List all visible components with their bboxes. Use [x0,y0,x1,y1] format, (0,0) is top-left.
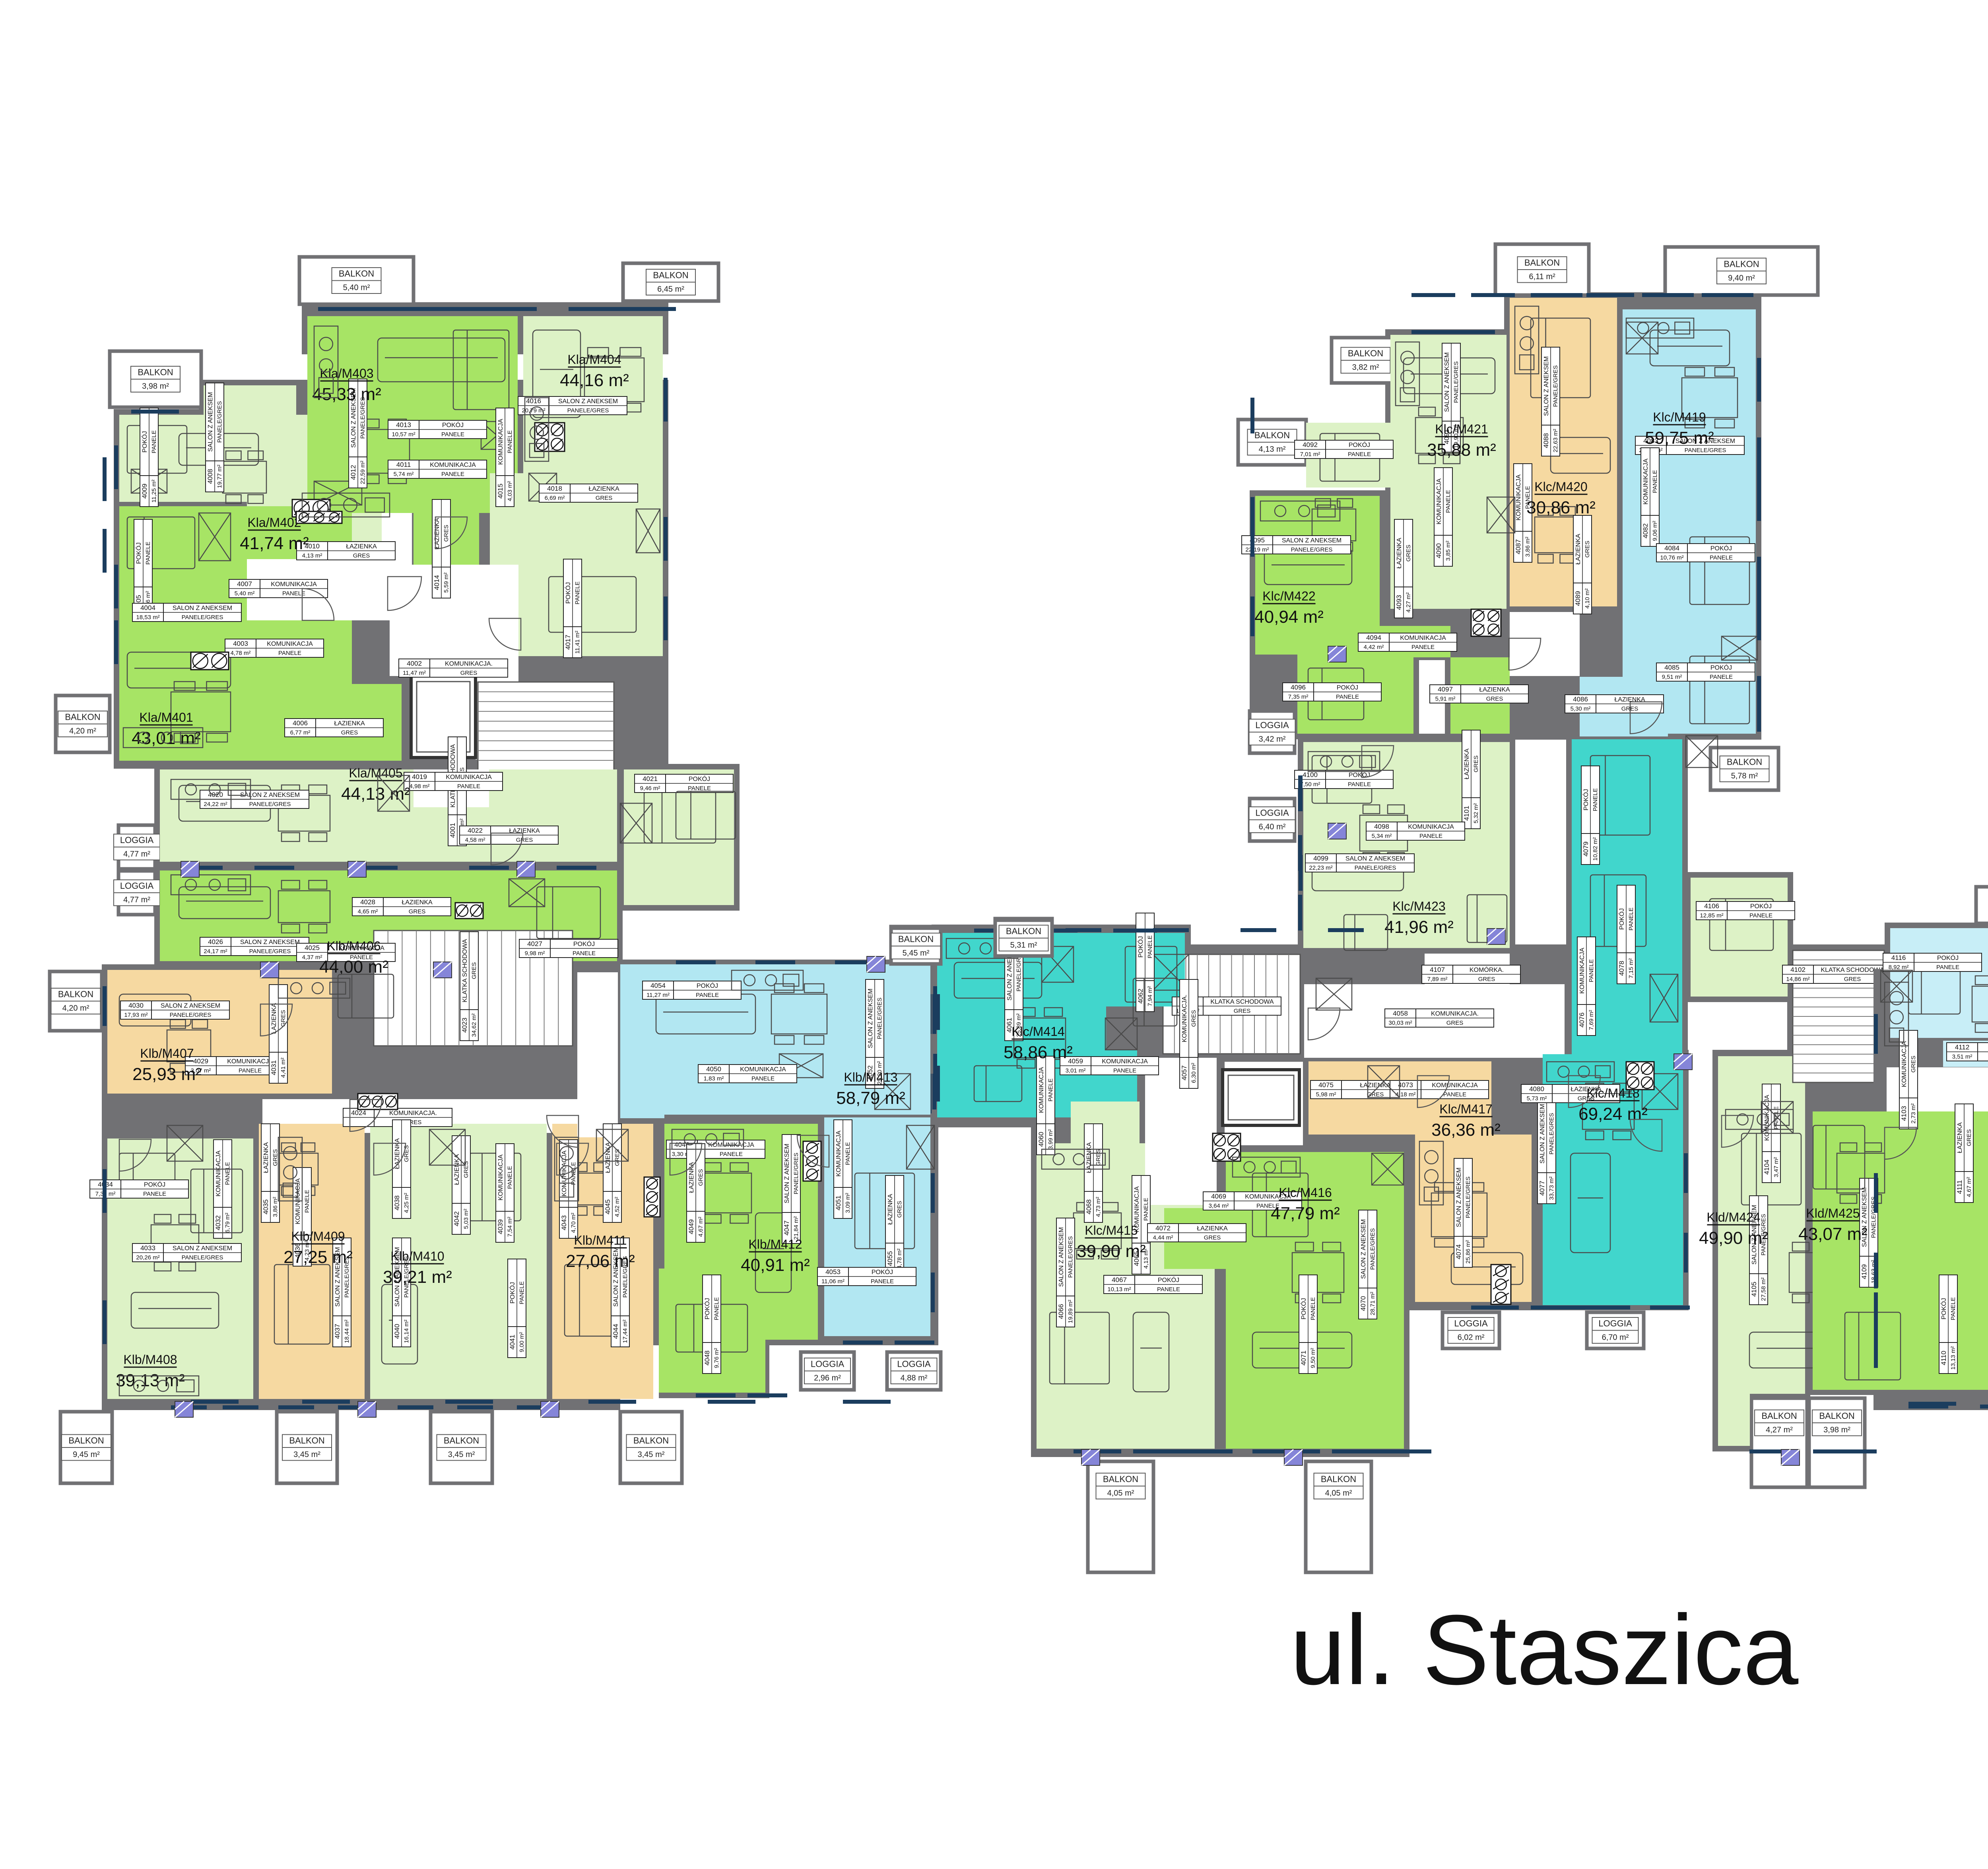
svg-text:22,23 m²: 22,23 m² [1309,865,1332,871]
svg-text:3,85 m²: 3,85 m² [1445,541,1452,561]
svg-text:Klb/M411: Klb/M411 [574,1233,627,1247]
svg-text:POKÓJ: POKÓJ [1349,441,1370,449]
svg-text:ŁAZIENKA: ŁAZIENKA [263,1142,270,1173]
svg-text:4037: 4037 [334,1324,341,1339]
svg-text:Kla/M405: Kla/M405 [349,766,402,780]
svg-text:21,84 m²: 21,84 m² [793,1216,800,1240]
svg-text:4,41 m²: 4,41 m² [280,1058,287,1078]
svg-text:4,65 m²: 4,65 m² [358,908,378,915]
svg-text:44,00 m²: 44,00 m² [319,957,388,977]
svg-text:Kla/M403: Kla/M403 [320,366,373,381]
svg-text:KOMUNIKACJA.: KOMUNIKACJA. [1431,1010,1479,1017]
svg-text:PANELE: PANELE [1592,788,1599,811]
svg-text:4028: 4028 [360,898,375,906]
svg-text:POKÓJ: POKÓJ [872,1268,893,1276]
svg-text:ŁAZIENKA: ŁAZIENKA [271,1003,278,1034]
svg-text:ŁAZIENKA: ŁAZIENKA [588,486,619,492]
svg-text:KOMUNIKACJA: KOMUNIKACJA [1038,1067,1045,1113]
svg-text:PANELE: PANELE [845,1142,851,1165]
svg-text:KOMUNIKACJA: KOMUNIKACJA [1102,1058,1148,1065]
svg-text:KOMUNIKACJA: KOMUNIKACJA [1436,478,1442,525]
svg-text:ŁAZIENKA: ŁAZIENKA [1197,1225,1228,1232]
svg-text:44,16 m²: 44,16 m² [560,371,629,390]
svg-text:7,35 m²: 7,35 m² [1288,694,1309,700]
svg-text:GRES: GRES [1478,976,1495,983]
svg-text:17,44 m²: 17,44 m² [622,1319,629,1343]
svg-text:4,13 m²: 4,13 m² [1259,445,1286,454]
svg-text:13,13 m²: 13,13 m² [1950,1346,1957,1370]
svg-text:POKÓJ: POKÓJ [141,431,148,453]
svg-text:POKÓJ: POKÓJ [1337,684,1358,691]
svg-text:3,51 m²: 3,51 m² [1952,1053,1972,1060]
svg-text:40,91 m²: 40,91 m² [741,1255,810,1275]
svg-text:2,96 m²: 2,96 m² [814,1374,841,1383]
svg-text:PANELE: PANELE [871,1278,894,1285]
svg-text:4038: 4038 [393,1195,401,1210]
svg-text:ŁAZIENKA: ŁAZIENKA [1396,538,1403,569]
svg-text:18,53 m²: 18,53 m² [136,614,159,621]
svg-text:5,32 m²: 5,32 m² [1473,803,1479,824]
svg-text:39,13 m²: 39,13 m² [116,1371,185,1390]
svg-text:2,73 m²: 2,73 m² [1910,1104,1917,1124]
svg-text:GRES: GRES [1584,541,1591,558]
svg-text:3,42 m²: 3,42 m² [1259,735,1286,744]
svg-text:SALON Z ANEKSEM: SALON Z ANEKSEM [1456,1168,1462,1227]
svg-text:11,41 m²: 11,41 m² [574,631,581,654]
svg-text:4,78 m²: 4,78 m² [896,1249,903,1269]
svg-text:SALON Z ANEKSEM: SALON Z ANEKSEM [1058,1227,1065,1287]
svg-text:4004: 4004 [140,604,155,612]
svg-text:Klb/M407: Klb/M407 [140,1046,194,1061]
svg-text:27,58 m²: 27,58 m² [1760,1277,1767,1301]
svg-text:3,86 m²: 3,86 m² [1524,537,1531,557]
svg-text:BALKON: BALKON [1524,258,1560,268]
svg-text:POKÓJ: POKÓJ [1582,789,1590,810]
svg-text:4,44 m²: 4,44 m² [1153,1234,1173,1241]
svg-text:BALKON: BALKON [1254,430,1290,440]
svg-text:3,98 m²: 3,98 m² [1823,1426,1850,1434]
svg-text:4086: 4086 [1573,696,1588,703]
svg-text:PANELE/GRES: PANELE/GRES [216,401,223,443]
svg-text:4,88 m²: 4,88 m² [901,1374,928,1383]
svg-text:5,78 m²: 5,78 m² [1731,772,1758,781]
svg-text:LOGGIA: LOGGIA [1255,808,1289,818]
svg-text:PANELE: PANELE [441,431,464,438]
svg-text:4,73 m²: 4,73 m² [1095,1197,1102,1217]
svg-text:KOMUNIKACJA: KOMUNIKACJA [497,1154,504,1201]
svg-text:4,78 m²: 4,78 m² [231,650,251,657]
svg-text:LOGGIA: LOGGIA [1255,720,1289,730]
svg-text:KOMUNIKACJA: KOMUNIKACJA [1515,474,1522,521]
svg-text:PANELE/GRES: PANELE/GRES [1453,361,1460,403]
svg-text:7,15 m²: 7,15 m² [1628,958,1635,979]
svg-text:4021: 4021 [643,775,658,783]
svg-text:4,42 m²: 4,42 m² [1364,644,1384,651]
svg-text:4019: 4019 [412,773,427,781]
svg-text:GRES: GRES [1966,1129,1972,1146]
svg-text:GRES: GRES [1204,1234,1221,1241]
svg-text:5,73 m²: 5,73 m² [1527,1095,1547,1102]
svg-text:4031: 4031 [270,1060,278,1075]
svg-text:4023: 4023 [461,1018,468,1033]
svg-text:GRES: GRES [896,1201,903,1218]
svg-text:GRES: GRES [443,525,450,542]
svg-text:SALON Z ANEKSEM: SALON Z ANEKSEM [1360,1219,1367,1279]
svg-text:4105: 4105 [1750,1282,1758,1297]
svg-text:PANELE: PANELE [1950,1297,1957,1320]
svg-text:GRES: GRES [614,1149,621,1166]
svg-text:PANELE: PANELE [1143,1198,1149,1221]
svg-text:7,89 m²: 7,89 m² [1427,976,1448,983]
svg-text:4009: 4009 [141,484,148,499]
svg-text:BALKON: BALKON [339,269,374,279]
svg-text:PANELE: PANELE [1310,1297,1316,1320]
svg-text:PANELE/GRES: PANELE/GRES [1067,1236,1074,1278]
svg-text:4,77 m²: 4,77 m² [123,896,150,904]
svg-text:41,96 m²: 41,96 m² [1384,917,1454,937]
svg-text:POKÓJ: POKÓJ [697,982,718,989]
svg-text:9,76 m²: 9,76 m² [713,1348,720,1368]
svg-text:4072: 4072 [1155,1224,1171,1232]
svg-text:4051: 4051 [835,1195,842,1210]
svg-text:PANELE: PANELE [224,1162,231,1185]
svg-text:GRES: GRES [1190,1010,1197,1027]
svg-text:24,17 m²: 24,17 m² [204,948,227,955]
svg-text:GRES: GRES [516,837,533,843]
svg-text:4,20 m²: 4,20 m² [69,727,96,736]
svg-text:BALKON: BALKON [68,1436,104,1445]
svg-text:POKÓJ: POKÓJ [573,940,595,948]
svg-text:KOMUNIKACJA: KOMUNIKACJA [430,462,476,468]
svg-text:5,03 m²: 5,03 m² [463,1209,470,1229]
svg-text:ŁAZIENKA: ŁAZIENKA [1957,1122,1963,1153]
svg-text:POKÓJ: POKÓJ [689,775,710,783]
svg-text:4002: 4002 [407,660,422,667]
svg-text:6,02 m²: 6,02 m² [1458,1333,1485,1342]
svg-text:4006: 4006 [293,719,308,727]
svg-text:4112: 4112 [1955,1043,1970,1051]
svg-text:5,91 m²: 5,91 m² [1435,696,1456,702]
svg-text:43,07 m²: 43,07 m² [1798,1224,1868,1244]
svg-text:5,45 m²: 5,45 m² [903,949,930,958]
svg-text:SALON Z ANEKSEM: SALON Z ANEKSEM [1539,1104,1546,1164]
svg-text:4088: 4088 [1542,433,1550,448]
svg-text:GRES: GRES [1486,696,1503,702]
svg-text:PANELE/GRES: PANELE/GRES [182,1254,223,1261]
svg-text:GRES: GRES [1095,1149,1102,1166]
svg-text:25,93 m²: 25,93 m² [132,1065,202,1084]
svg-text:LOGGIA: LOGGIA [120,881,154,891]
svg-text:4,05 m²: 4,05 m² [1107,1489,1134,1498]
svg-text:4077: 4077 [1538,1181,1546,1196]
svg-text:POKÓJ: POKÓJ [1937,954,1959,962]
svg-text:4053: 4053 [825,1268,841,1276]
svg-text:POKÓJ: POKÓJ [1618,908,1625,930]
svg-text:6,77 m²: 6,77 m² [290,729,311,736]
svg-text:ŁAZIENKA: ŁAZIENKA [1479,686,1510,693]
svg-text:34,62 m²: 34,62 m² [471,1013,478,1037]
svg-text:GRES: GRES [280,1010,287,1027]
svg-text:Klc/M417: Klc/M417 [1439,1102,1492,1116]
svg-text:4098: 4098 [1374,823,1389,830]
svg-text:58,86 m²: 58,86 m² [1004,1043,1073,1062]
svg-text:4026: 4026 [208,938,223,946]
svg-text:PANELE/GRES: PANELE/GRES [1685,447,1726,454]
svg-text:4,67 m²: 4,67 m² [697,1217,704,1237]
svg-text:4022: 4022 [468,827,483,834]
svg-text:POKÓJ: POKÓJ [1750,902,1772,910]
svg-text:49,90 m²: 49,90 m² [1699,1228,1768,1248]
svg-text:PANELE: PANELE [304,1190,311,1213]
svg-text:BALKON: BALKON [444,1436,479,1445]
svg-text:47,79 m²: 47,79 m² [1271,1204,1340,1223]
svg-text:7,69 m²: 7,69 m² [1588,1010,1595,1030]
svg-text:4060: 4060 [1037,1132,1045,1147]
svg-text:4050: 4050 [706,1065,721,1073]
svg-text:BALKON: BALKON [1321,1474,1356,1484]
svg-text:4044: 4044 [612,1324,619,1339]
svg-text:4047: 4047 [783,1220,790,1236]
svg-text:PANELE: PANELE [1157,1286,1180,1293]
svg-text:4087: 4087 [1514,539,1522,554]
svg-text:PANELE: PANELE [1936,964,1959,971]
svg-text:36,36 m²: 36,36 m² [1431,1120,1501,1140]
svg-text:KOMUNIKACJA.: KOMUNIKACJA. [1181,995,1188,1042]
svg-text:SALON Z ANEKSEM: SALON Z ANEKSEM [1543,356,1550,416]
svg-text:PANELE: PANELE [151,430,157,453]
svg-text:3,64 m²: 3,64 m² [1209,1203,1229,1209]
svg-text:SALON Z ANEKSEM: SALON Z ANEKSEM [173,1245,232,1252]
svg-text:3,09 m²: 3,09 m² [845,1193,851,1213]
svg-text:11,47 m²: 11,47 m² [403,670,426,676]
svg-text:PANELE: PANELE [1628,907,1635,931]
svg-text:4089: 4089 [1574,591,1582,606]
svg-text:GRES: GRES [1473,756,1479,773]
svg-text:PANELE/GRES: PANELE/GRES [567,407,609,414]
svg-text:GRES: GRES [697,1169,704,1186]
svg-text:4,77 m²: 4,77 m² [123,850,150,859]
svg-text:4017: 4017 [564,635,572,650]
svg-text:Kla/M404: Kla/M404 [567,352,621,367]
svg-text:17,93 m²: 17,93 m² [124,1012,148,1018]
svg-text:4,52 m²: 4,52 m² [614,1197,621,1217]
svg-text:4116: 4116 [1891,954,1906,962]
svg-text:PANELE: PANELE [1652,470,1658,493]
svg-text:KOMUNIKACJA: KOMUNIKACJA [835,1131,842,1177]
svg-text:Klc/M419: Klc/M419 [1653,410,1706,424]
svg-text:PANELE: PANELE [688,785,711,792]
svg-text:4074: 4074 [1455,1244,1462,1259]
svg-text:4025: 4025 [305,944,320,952]
svg-text:BALKON: BALKON [138,367,173,377]
svg-text:BALKON: BALKON [1724,259,1759,269]
svg-text:PANELE: PANELE [239,1067,262,1074]
svg-text:GRES: GRES [1446,1020,1464,1026]
svg-text:Klb/M409: Klb/M409 [291,1229,345,1243]
svg-text:ŁAZIENKA: ŁAZIENKA [887,1194,894,1225]
svg-text:PANELE: PANELE [278,650,301,657]
svg-text:6,40 m²: 6,40 m² [1259,823,1286,832]
svg-text:9,50 m²: 9,50 m² [1310,1348,1316,1368]
svg-text:3,99 m²: 3,99 m² [1047,1129,1054,1150]
svg-text:KOMUNIKACJA: KOMUNIKACJA [1901,1041,1908,1087]
svg-text:4042: 4042 [453,1211,460,1226]
svg-text:4092: 4092 [1303,441,1318,449]
svg-text:Klc/M414: Klc/M414 [1011,1024,1064,1039]
svg-text:POKÓJ: POKÓJ [564,582,572,604]
svg-text:4,70 m²: 4,70 m² [570,1213,577,1233]
svg-text:6,79 m²: 6,79 m² [224,1213,231,1233]
svg-text:6,69 m²: 6,69 m² [545,495,565,501]
svg-text:PANELE: PANELE [507,430,513,453]
svg-text:9,51 m²: 9,51 m² [1662,674,1682,680]
svg-text:4049: 4049 [687,1219,695,1234]
svg-text:GRES: GRES [1405,545,1412,562]
svg-text:4084: 4084 [1664,544,1679,552]
svg-text:Klb/M412: Klb/M412 [748,1237,802,1251]
svg-text:KOMUNIKACJA: KOMUNIKACJA [215,1150,222,1197]
svg-text:10,82 m²: 10,82 m² [1592,837,1599,861]
svg-text:PANELE/GRES: PANELE/GRES [876,998,883,1039]
svg-text:4041: 4041 [509,1335,516,1350]
svg-text:4057: 4057 [1180,1065,1188,1080]
svg-text:SALON Z ANEKSEM: SALON Z ANEKSEM [1444,352,1450,412]
svg-text:7,50 m²: 7,50 m² [1300,781,1320,788]
svg-text:GRES: GRES [1367,1091,1384,1098]
svg-text:PANELE: PANELE [145,542,151,565]
svg-text:Kla/M401: Kla/M401 [139,710,193,725]
svg-text:20,26 m²: 20,26 m² [136,1254,159,1261]
svg-text:Klc/M421: Klc/M421 [1435,422,1488,436]
svg-text:4107: 4107 [1430,966,1445,973]
svg-text:4111: 4111 [1956,1180,1963,1194]
svg-text:POKÓJ: POKÓJ [1137,936,1144,958]
svg-text:3,86 m²: 3,86 m² [272,1197,279,1217]
svg-text:GRES: GRES [409,908,426,915]
svg-text:BALKON: BALKON [1103,1474,1138,1484]
svg-text:KOMUNIKACJA: KOMUNIKACJA [1579,948,1586,994]
svg-text:3,45 m²: 3,45 m² [638,1450,665,1459]
svg-text:ŁAZIENKA: ŁAZIENKA [1360,1082,1391,1089]
svg-text:KOMUNIKACJA: KOMUNIKACJA [227,1058,273,1065]
svg-text:4066: 4066 [1057,1304,1065,1319]
svg-text:4043: 4043 [560,1215,568,1230]
svg-text:POKÓJ: POKÓJ [1300,1298,1307,1319]
svg-text:4110: 4110 [1940,1351,1947,1366]
svg-text:6,30 m²: 6,30 m² [1190,1063,1197,1083]
svg-text:ŁAZIENKA: ŁAZIENKA [454,1154,460,1185]
svg-text:1,83 m²: 1,83 m² [704,1075,724,1082]
svg-text:4078: 4078 [1618,961,1625,976]
svg-text:SALON Z ANEKSEM: SALON Z ANEKSEM [240,939,300,946]
svg-text:SALON Z ANEKSEM: SALON Z ANEKSEM [240,792,300,799]
svg-text:BALKON: BALKON [58,989,93,999]
svg-text:8,92 m²: 8,92 m² [1889,964,1909,971]
svg-text:4106: 4106 [1704,902,1719,910]
svg-text:BALKON: BALKON [653,270,688,280]
svg-text:PANELE: PANELE [574,581,581,604]
svg-text:Kld/M425: Kld/M425 [1806,1206,1860,1220]
svg-text:4103: 4103 [1900,1106,1908,1121]
svg-text:3,45 m²: 3,45 m² [293,1450,320,1459]
svg-text:PANELE: PANELE [713,1297,720,1320]
svg-text:PANELE/GRES: PANELE/GRES [170,1012,212,1018]
svg-text:4082: 4082 [1642,523,1649,538]
svg-text:4014: 4014 [433,575,441,590]
svg-text:KOMUNIKACJA: KOMUNIKACJA [1432,1082,1478,1089]
svg-text:PANELE: PANELE [1348,781,1371,788]
svg-text:ŁAZIENKA: ŁAZIENKA [1575,534,1582,565]
svg-text:4032: 4032 [214,1215,222,1230]
svg-text:KOMUNIKACJA: KOMUNIKACJA [271,581,317,588]
svg-text:ŁAZIENKA: ŁAZIENKA [346,543,377,550]
svg-text:5,40 m²: 5,40 m² [235,590,255,597]
svg-text:9,46 m²: 9,46 m² [640,785,660,792]
svg-text:9,06 m²: 9,06 m² [1652,521,1658,541]
svg-text:4104: 4104 [1763,1160,1771,1175]
svg-text:4012: 4012 [349,465,357,480]
svg-text:14,86 m²: 14,86 m² [1786,976,1809,983]
svg-text:4045: 4045 [604,1199,612,1214]
svg-text:ŁAZIENKA: ŁAZIENKA [402,899,433,906]
svg-text:4067: 4067 [1112,1276,1127,1284]
svg-text:6,11 m²: 6,11 m² [1529,272,1555,281]
svg-text:PANELE: PANELE [143,1191,166,1197]
svg-text:4069: 4069 [1211,1193,1226,1200]
svg-text:SALON Z ANEKSEM: SALON Z ANEKSEM [867,989,874,1048]
svg-text:PANELE: PANELE [1147,935,1153,958]
svg-text:4068: 4068 [1085,1199,1093,1214]
svg-text:PANELE: PANELE [1749,912,1773,919]
svg-text:GRES: GRES [596,495,613,501]
svg-text:69,24 m²: 69,24 m² [1578,1104,1648,1124]
svg-text:BALKON: BALKON [65,712,100,722]
svg-text:4029: 4029 [193,1057,208,1065]
svg-text:11,06 m²: 11,06 m² [821,1278,845,1285]
svg-text:4039: 4039 [497,1219,504,1234]
svg-text:4055: 4055 [886,1251,894,1266]
svg-text:5,31 m²: 5,31 m² [1010,941,1037,950]
svg-text:POKÓJ: POKÓJ [135,542,142,564]
svg-text:5,59 m²: 5,59 m² [443,573,450,593]
svg-text:BALKON: BALKON [1819,1411,1854,1421]
svg-text:4080: 4080 [1529,1085,1544,1093]
svg-text:9,45 m²: 9,45 m² [73,1450,100,1459]
svg-text:KOMÓRKA.: KOMÓRKA. [1470,966,1504,973]
svg-text:LOGGIA: LOGGIA [811,1359,845,1369]
svg-text:4101: 4101 [1463,806,1470,821]
svg-text:PANELE: PANELE [1443,1091,1466,1098]
svg-text:6,70 m²: 6,70 m² [1602,1333,1629,1342]
svg-text:SALON Z ANEKSEM: SALON Z ANEKSEM [784,1144,790,1203]
svg-text:ŁAZIENKA: ŁAZIENKA [1464,748,1470,779]
svg-text:4035: 4035 [262,1199,270,1214]
svg-text:ŁAZIENKA: ŁAZIENKA [334,720,365,727]
svg-text:PANELE: PANELE [1710,554,1733,561]
svg-text:4,67 m²: 4,67 m² [1966,1177,1972,1197]
svg-text:4,10 m²: 4,10 m² [1584,589,1591,609]
svg-text:KOMUNIKACJA: KOMUNIKACJA [1642,459,1649,505]
svg-text:5,74 m²: 5,74 m² [394,471,414,478]
svg-text:POKÓJ: POKÓJ [703,1298,711,1319]
svg-text:3,47 m²: 3,47 m² [1773,1157,1780,1177]
svg-text:PANELE: PANELE [573,950,596,957]
svg-text:4001: 4001 [449,823,456,838]
svg-text:PANELE: PANELE [1336,694,1359,700]
svg-text:4024: 4024 [351,1109,366,1117]
svg-text:39,21 m²: 39,21 m² [383,1267,452,1287]
svg-text:GRES: GRES [1910,1056,1917,1073]
